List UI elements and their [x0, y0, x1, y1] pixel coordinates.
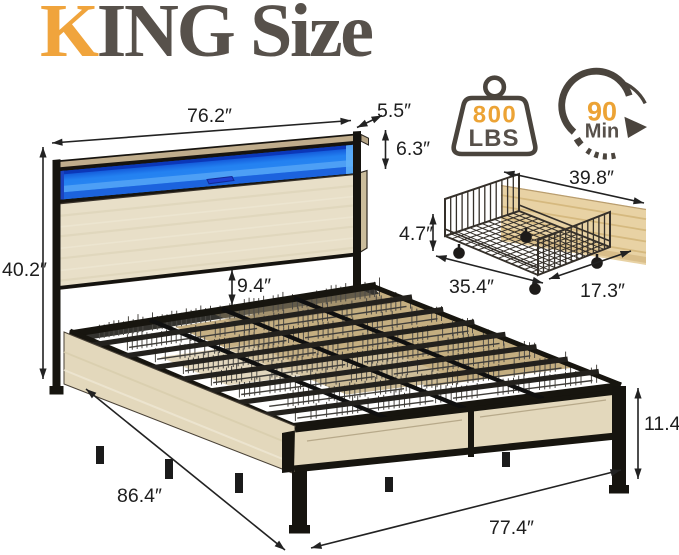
svg-text:39.8″: 39.8″: [569, 167, 614, 189]
svg-text:17.3″: 17.3″: [580, 280, 625, 302]
svg-text:LBS: LBS: [469, 125, 520, 152]
svg-text:9.4″: 9.4″: [237, 275, 271, 297]
svg-text:76.2″: 76.2″: [187, 105, 232, 127]
svg-text:77.4″: 77.4″: [489, 517, 534, 539]
svg-text:6.3″: 6.3″: [396, 138, 430, 160]
svg-text:40.2″: 40.2″: [2, 259, 47, 281]
svg-text:35.4″: 35.4″: [449, 276, 494, 298]
svg-text:Min: Min: [585, 121, 619, 143]
svg-text:86.4″: 86.4″: [117, 485, 162, 507]
svg-text:11.4″: 11.4″: [644, 413, 679, 435]
svg-text:KING Size: KING Size: [40, 0, 374, 73]
svg-text:4.7″: 4.7″: [399, 223, 433, 245]
svg-text:5.5″: 5.5″: [377, 100, 411, 122]
